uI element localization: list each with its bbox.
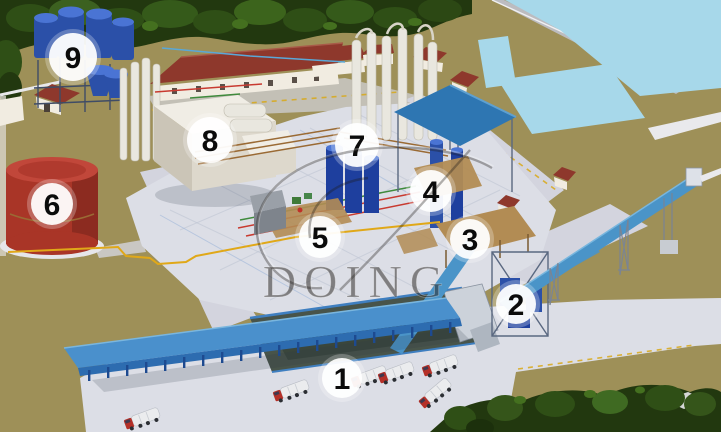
plant-3d-render: 1 2 3 4 5 6 7 8 [0, 0, 721, 432]
marker-number: 9 [65, 42, 82, 75]
plant-scene: 1 2 3 4 5 6 7 8 [0, 0, 721, 432]
marker-9: 9 [45, 29, 101, 85]
marker-2: 2 [492, 280, 540, 328]
marker-8: 8 [183, 113, 237, 167]
marker-number: 8 [202, 125, 219, 158]
marker-3: 3 [446, 215, 494, 263]
marker-number: 5 [312, 222, 329, 255]
marker-number: 1 [334, 363, 351, 396]
marker-1: 1 [318, 354, 366, 402]
marker-6: 6 [27, 179, 77, 229]
marker-number: 7 [349, 130, 366, 163]
marker-number: 2 [508, 289, 525, 322]
watermark-text: DOING [263, 256, 451, 307]
marker-5: 5 [295, 212, 345, 262]
marker-7: 7 [331, 119, 383, 171]
marker-number: 6 [44, 189, 61, 222]
marker-number: 3 [462, 224, 479, 257]
